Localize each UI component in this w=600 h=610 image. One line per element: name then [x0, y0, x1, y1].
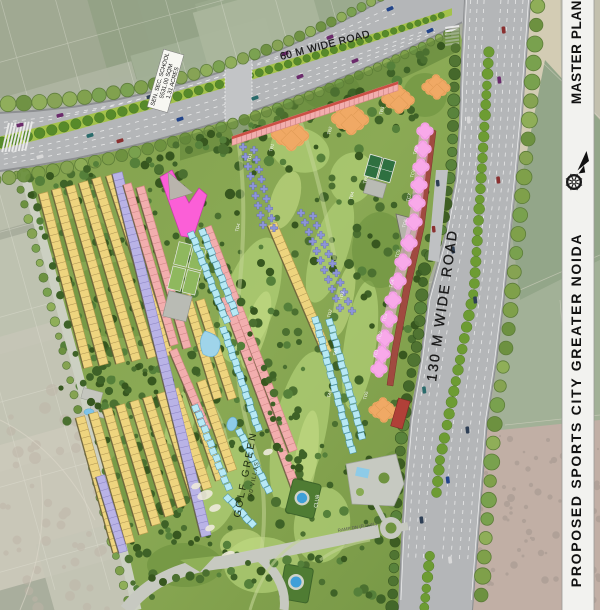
svg-text:PROPOSED SPORTS CITY GREATER N: PROPOSED SPORTS CITY GREATER NOIDA	[568, 233, 584, 587]
svg-text:MASTER PLAN: MASTER PLAN	[569, 0, 584, 104]
